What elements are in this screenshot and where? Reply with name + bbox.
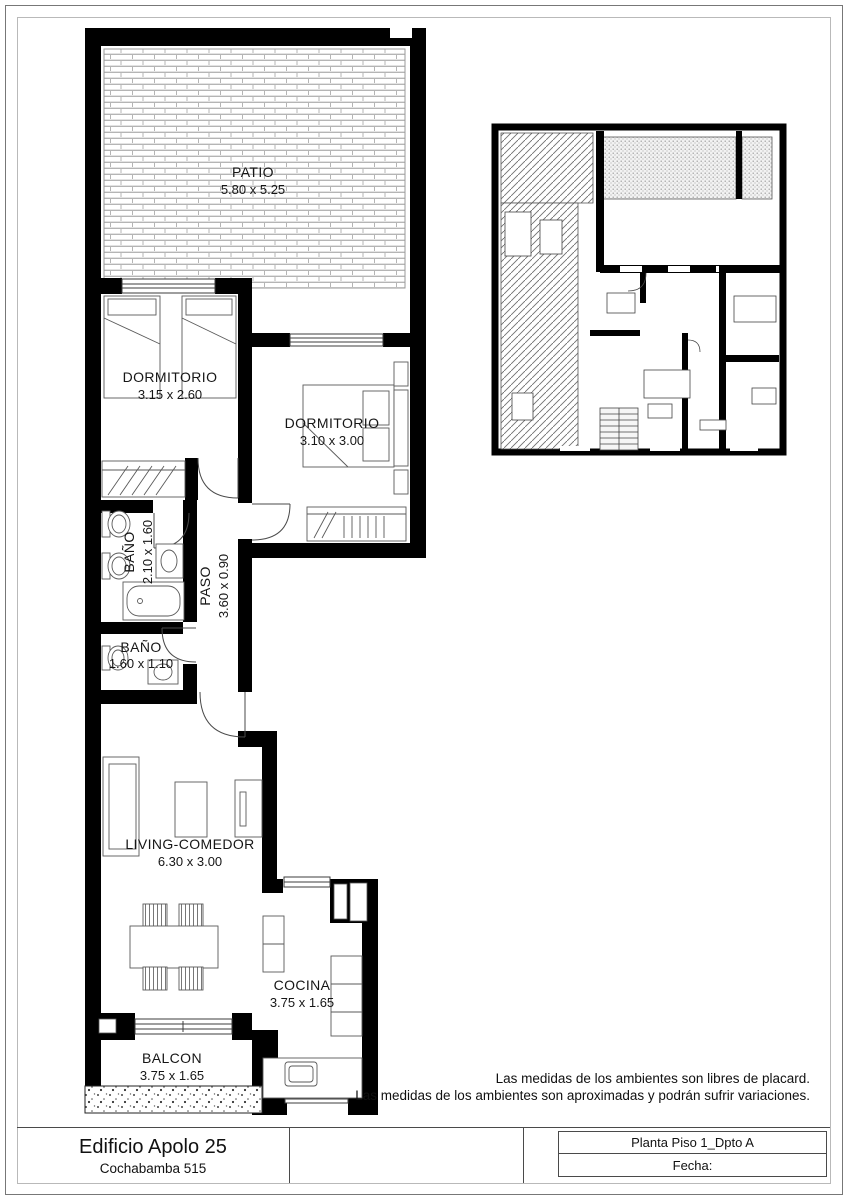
- plan-title: Planta Piso 1_Dpto A: [559, 1132, 826, 1154]
- room-dims-cocina: 3.75 x 1.65: [270, 995, 334, 1010]
- key-plan-patio-3: [742, 137, 772, 199]
- door-dormitorio-1: [198, 458, 238, 498]
- title-block-project: Edificio Apolo 25 Cochabamba 515: [17, 1128, 289, 1183]
- door-dormitorio-2: [252, 504, 290, 540]
- title-block-vline-2: [523, 1127, 524, 1183]
- fridge: [334, 884, 347, 919]
- date-label: Fecha:: [559, 1154, 826, 1177]
- fridge-2: [350, 883, 367, 921]
- note-line-1: Las medidas de los ambientes son libres …: [210, 1070, 810, 1087]
- room-label-cocina: COCINA: [274, 977, 331, 993]
- door-living: [200, 692, 245, 737]
- floor-plan-svg: PATIO 5.80 x 5.25 DORMITORIO 3.15 x 2.60…: [0, 0, 848, 1200]
- room-dims-living: 6.30 x 3.00: [158, 854, 222, 869]
- room-dims-dormitorio-1: 3.15 x 2.60: [138, 387, 202, 402]
- room-dims-balcon: 3.75 x 1.65: [140, 1068, 204, 1083]
- room-label-patio: PATIO: [232, 164, 274, 180]
- room-label-paso: PASO: [197, 566, 213, 605]
- room-dims-banio-2: 1.60 x 1.10: [109, 656, 173, 671]
- sliding-door-balcony: [135, 1019, 232, 1034]
- room-dims-banio-1: 2.10 x 1.60: [140, 520, 155, 584]
- closet-dormitorio-1: [102, 461, 185, 497]
- vanity: [156, 544, 183, 578]
- room-label-dormitorio-2: DORMITORIO: [285, 415, 380, 431]
- pass-through: [284, 877, 330, 887]
- title-block-sheet-info: Planta Piso 1_Dpto A Fecha:: [558, 1131, 827, 1177]
- apartment-plan: PATIO 5.80 x 5.25 DORMITORIO 3.15 x 2.60…: [85, 28, 426, 1115]
- window-dormitorio-2: [290, 334, 383, 346]
- key-plan-patio-2: [602, 137, 736, 199]
- closet-dormitorio-2: [307, 507, 406, 541]
- room-label-banio-2: BAÑO: [120, 639, 161, 655]
- project-address: Cochabamba 515: [100, 1161, 207, 1176]
- title-block-vline-1: [289, 1127, 290, 1183]
- room-label-banio-1: BAÑO: [121, 531, 137, 572]
- room-dims-patio: 5.80 x 5.25: [221, 182, 285, 197]
- key-plan-unit-a-patio: [501, 133, 593, 203]
- bathtub: [123, 582, 184, 620]
- room-dims-paso: 3.60 x 0.90: [216, 554, 231, 618]
- coffee-table: [175, 782, 207, 837]
- room-label-dormitorio-1: DORMITORIO: [123, 369, 218, 385]
- dining-set: [130, 904, 218, 990]
- tv-unit: [235, 780, 262, 837]
- room-label-balcon: BALCON: [142, 1050, 202, 1066]
- window-dormitorio-1: [122, 279, 215, 293]
- room-dims-dormitorio-2: 3.10 x 3.00: [300, 433, 364, 448]
- key-plan-stairs: [600, 408, 638, 450]
- drawing-notes: Las medidas de los ambientes son libres …: [210, 1070, 810, 1104]
- room-label-living: LIVING-COMEDOR: [125, 836, 254, 852]
- project-name: Edificio Apolo 25: [79, 1136, 227, 1159]
- key-plan: [495, 127, 783, 452]
- balcony-pillar: [99, 1019, 116, 1033]
- drawing-sheet: PATIO 5.80 x 5.25 DORMITORIO 3.15 x 2.60…: [0, 0, 848, 1200]
- note-line-2: Las medidas de los ambientes son aproxim…: [210, 1087, 810, 1104]
- wall-notch: [390, 28, 412, 38]
